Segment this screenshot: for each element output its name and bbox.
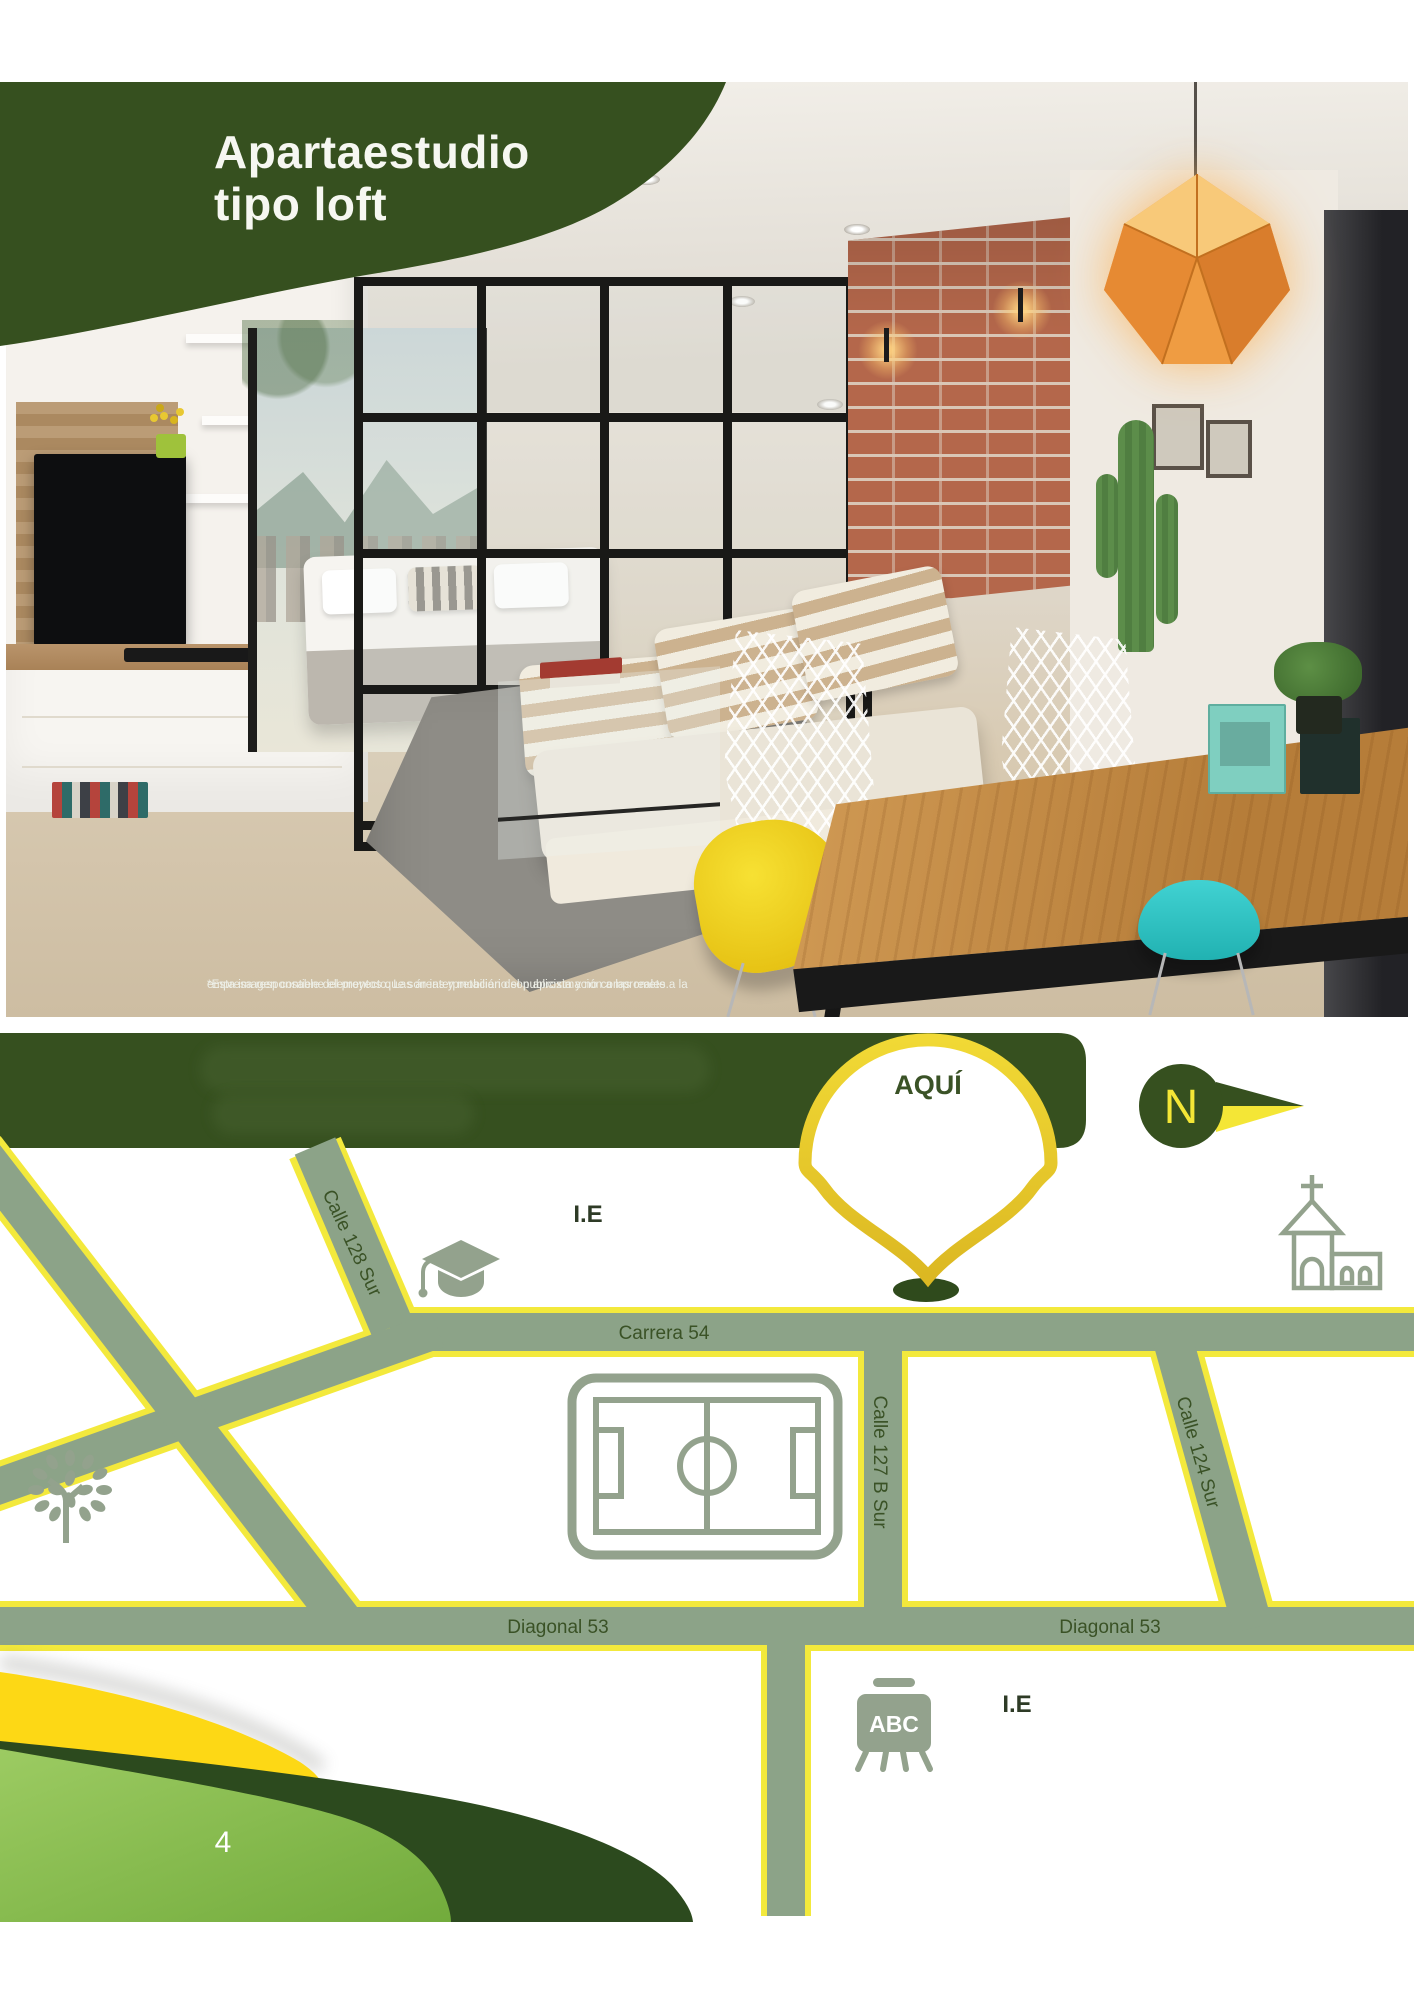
cactus <box>1118 420 1154 652</box>
spotlight-icon <box>844 224 870 235</box>
compass: N <box>1139 1064 1304 1148</box>
coffee-table <box>498 666 720 860</box>
picture-frame <box>1206 420 1252 478</box>
label-calle-127b-sur: Calle 127 B Sur <box>869 1395 890 1529</box>
tv <box>34 454 186 646</box>
wall-sconce-icon <box>992 280 1052 340</box>
tea-box <box>1208 704 1286 794</box>
cactus-arm <box>1156 494 1178 624</box>
compass-pointer-yellow <box>1216 1106 1304 1132</box>
chair-leg <box>726 963 744 1017</box>
location-map: ABC I.E Carrera 54 Calle 128 Sur Calle 1… <box>0 1020 1414 2000</box>
abc-easel-icon: ABC <box>857 1678 931 1769</box>
redacted-title-line2 <box>212 1094 474 1134</box>
label-diagonal-53-left: Diagonal 53 <box>507 1617 608 1638</box>
page-title: Apartaestudio tipo loft <box>214 126 530 230</box>
title-line1: Apartaestudio <box>214 126 530 178</box>
table-shelf <box>498 802 720 822</box>
pendant-lamp-icon <box>1102 172 1292 372</box>
label-carrera-54: Carrera 54 <box>619 1323 710 1344</box>
poi-ie-bottom: I.E <box>1002 1691 1031 1718</box>
drawer-line <box>22 766 342 768</box>
disclaimer-line2: empresa responsable del proyecto. Las ár… <box>207 979 669 992</box>
lamp-cord <box>1194 82 1197 178</box>
door-frame <box>248 328 257 752</box>
bar-plant <box>1274 642 1362 704</box>
graduation-cap-icon <box>419 1240 501 1298</box>
plant-pot <box>156 434 186 458</box>
compass-pointer-dark <box>1216 1082 1304 1106</box>
wall-sconce-icon <box>858 320 918 380</box>
soccer-field-icon <box>572 1378 838 1555</box>
compass-n: N <box>1164 1081 1199 1134</box>
church-icon <box>1283 1175 1380 1288</box>
brick-wall <box>848 217 1072 609</box>
redacted-title-line1 <box>200 1046 710 1092</box>
title-line2: tipo loft <box>214 178 530 230</box>
bar-plant-pot <box>1296 696 1342 734</box>
picture-frame <box>1152 404 1204 470</box>
brochure-page: *Esta imagen contiene elementos que son … <box>0 0 1414 2000</box>
label-diagonal-53-right: Diagonal 53 <box>1059 1617 1160 1638</box>
poi-ie-top: I.E <box>573 1201 602 1228</box>
cactus-arm <box>1096 474 1118 578</box>
books <box>52 782 148 818</box>
pin-label: AQUÍ <box>894 1069 963 1100</box>
flowers <box>150 414 158 422</box>
abc-board-label: ABC <box>869 1711 919 1737</box>
page-number: 4 <box>215 1826 232 1859</box>
